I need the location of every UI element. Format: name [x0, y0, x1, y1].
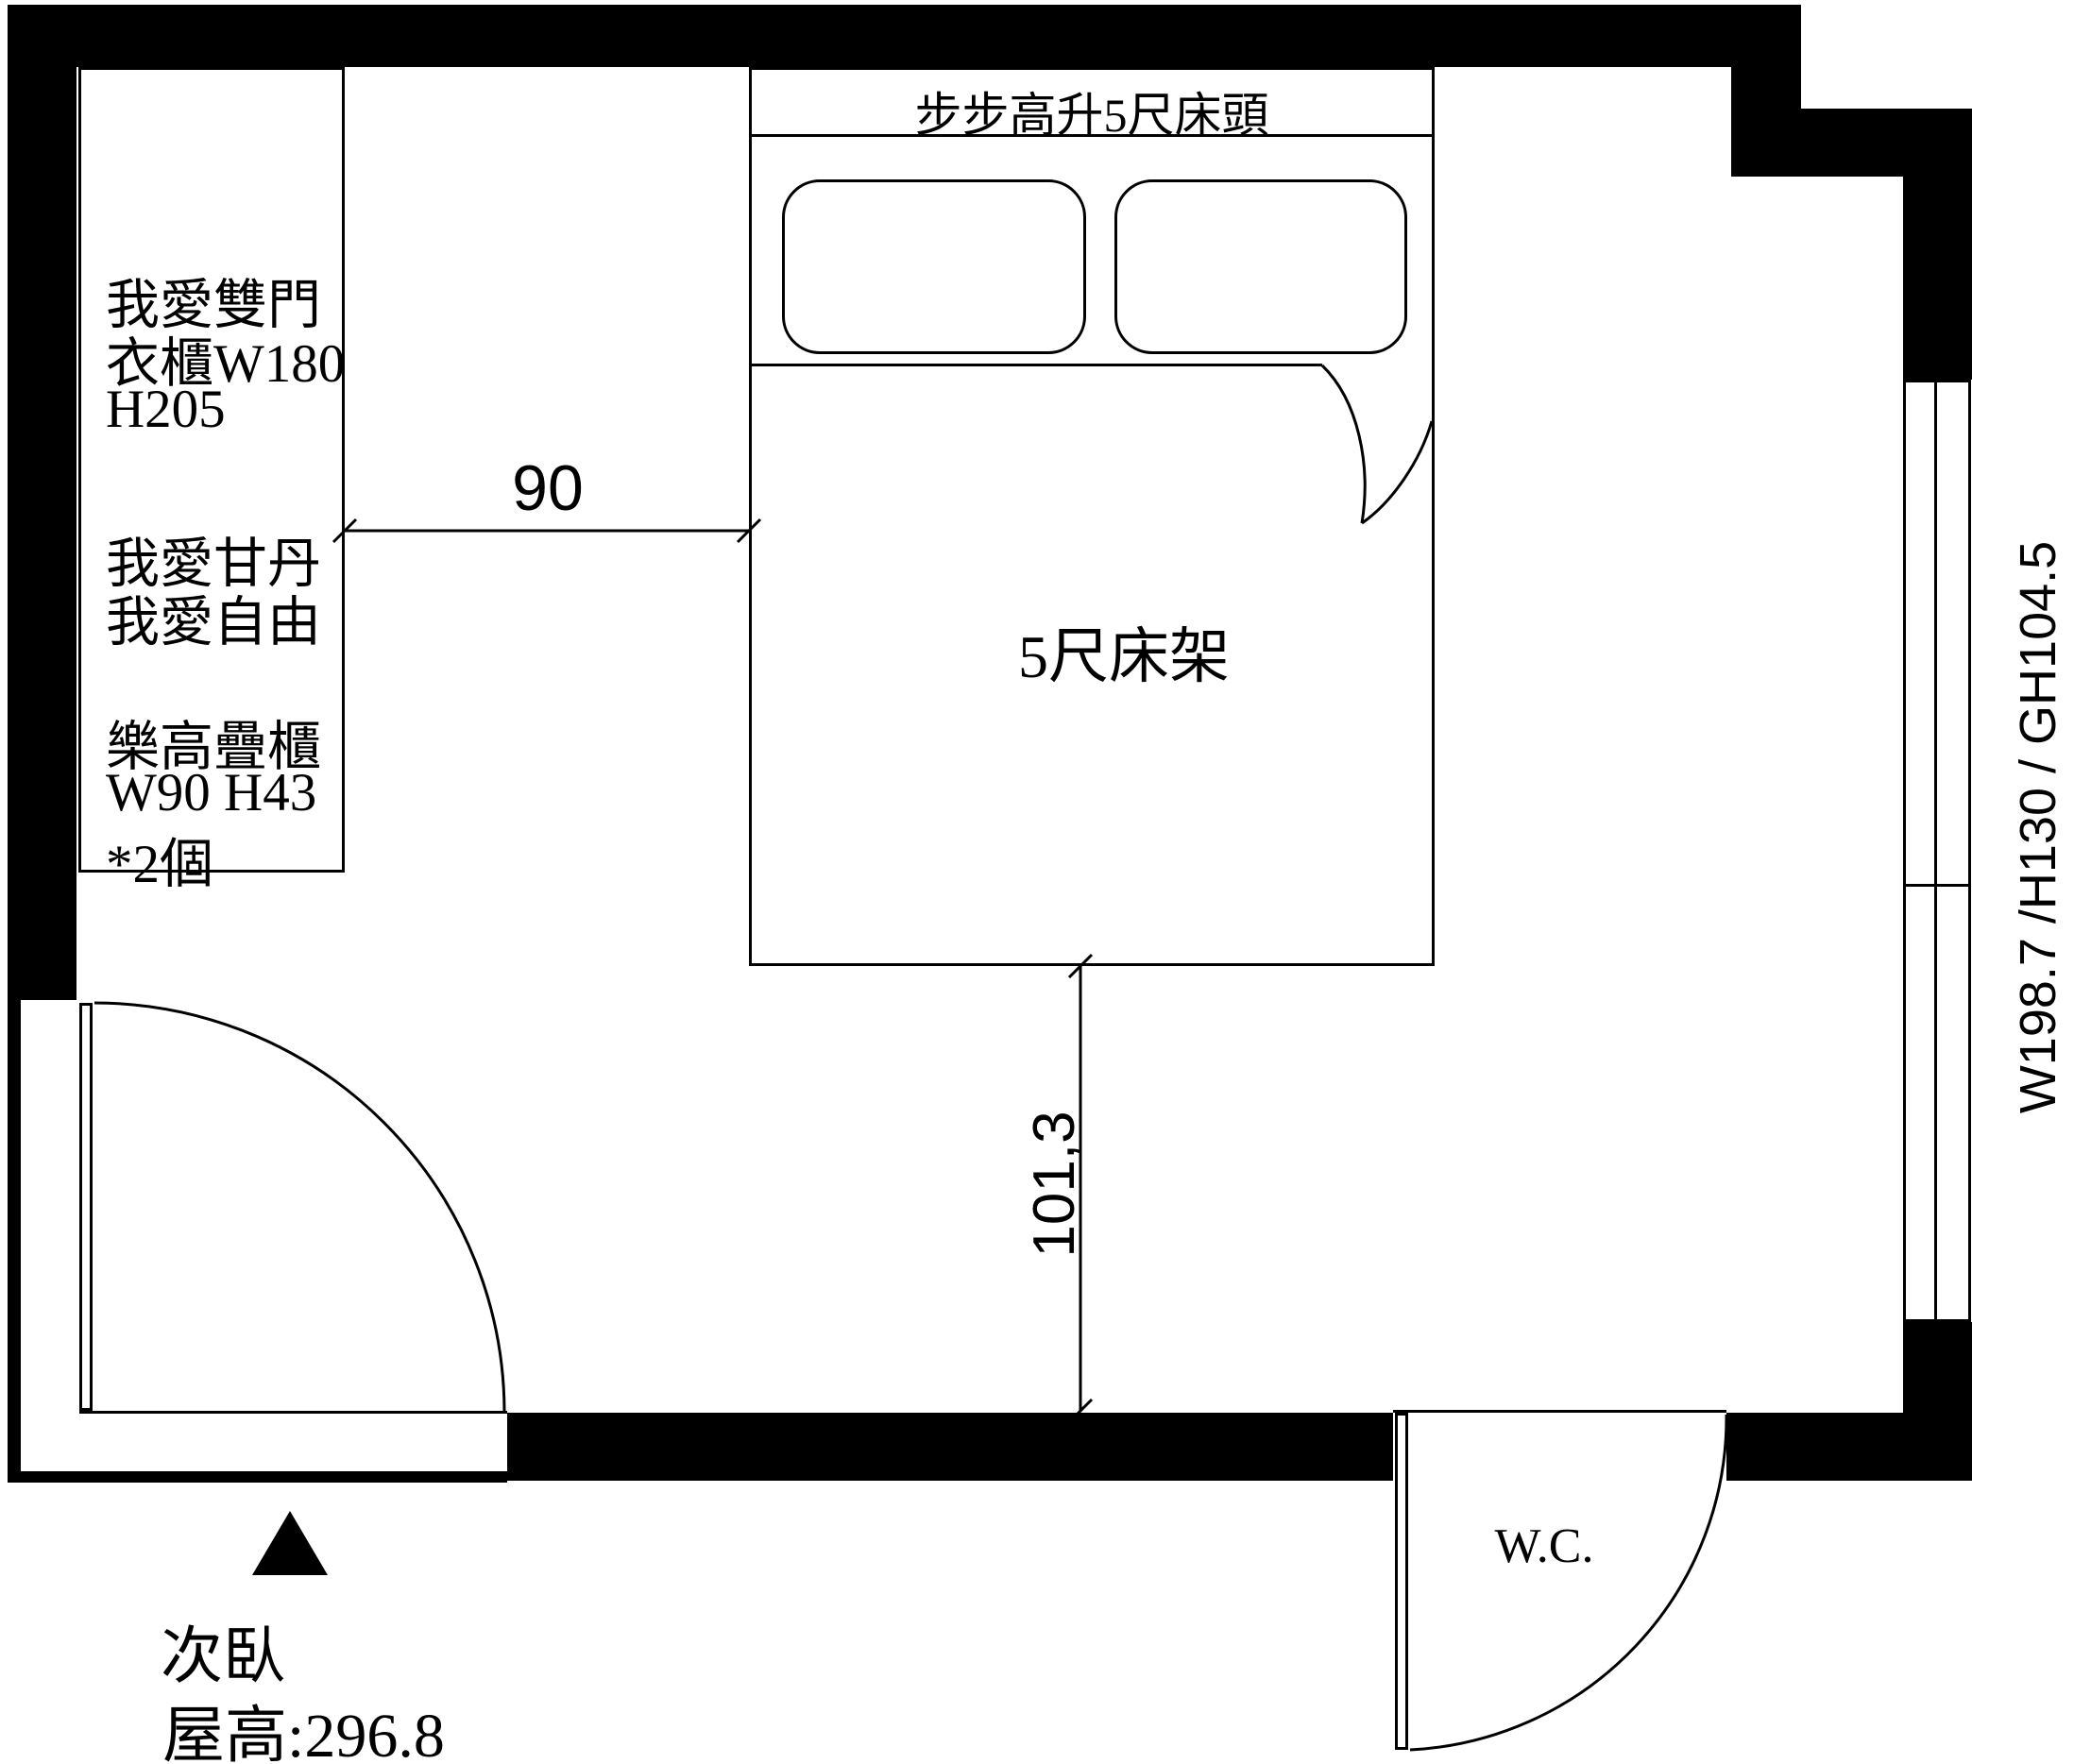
room-name: 次臥	[161, 1605, 285, 1696]
mattress-fold-curl-front	[1322, 365, 1365, 523]
wc-label: W.C.	[1445, 1518, 1643, 1574]
floor-plan: 我愛雙門 衣櫃W180 H205 我愛甘丹 我愛自由 樂高疊櫃 W90 H43 …	[0, 0, 2074, 1764]
plan-curves	[0, 0, 2074, 1764]
mattress-fold-curl-back	[1362, 421, 1432, 523]
north-arrow-icon	[252, 1511, 328, 1575]
wc-door-arc	[1410, 1415, 1726, 1750]
entry-door-arc	[94, 1003, 504, 1411]
ceiling-height: 屋高:296.8	[162, 1685, 445, 1764]
